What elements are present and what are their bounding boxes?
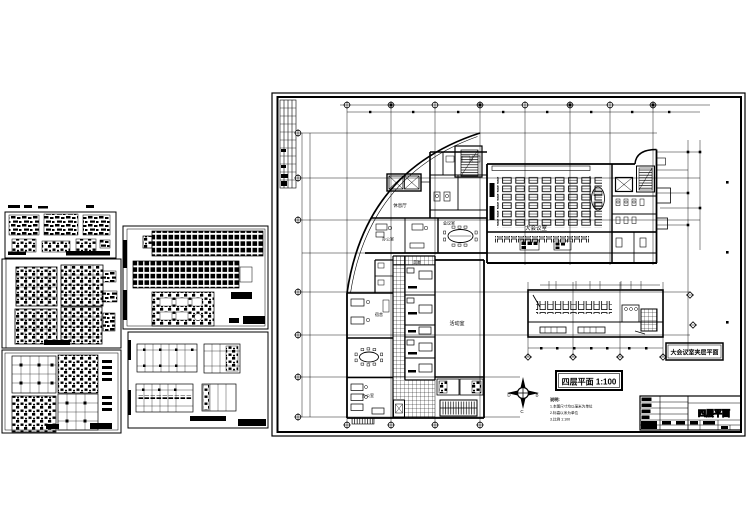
- label-office-top: 办公室: [382, 236, 394, 242]
- plan-title: 四层平面 1:100: [562, 378, 617, 387]
- notes-title: 说明:: [550, 396, 560, 403]
- label-office-bottom: 办公室: [362, 392, 374, 398]
- label-activity: 活动室: [449, 320, 464, 327]
- panel-b: [2, 259, 121, 348]
- main-sheet: 大会议室 休息厅 会议室 办公室 走廊 活动室 宿舍 办公室 大会议室夹层平面 …: [272, 93, 745, 436]
- panel-c: [2, 350, 121, 433]
- notes-line2: 2.标高以米为单位: [550, 410, 579, 415]
- titleblock-drawing-name: 四层平面: [698, 409, 730, 418]
- label-meeting: 会议室: [443, 220, 455, 226]
- panel-d: [123, 226, 268, 329]
- notes-line1: 1.本图尺寸均以毫米为单位: [550, 404, 593, 409]
- panel-e: [128, 332, 268, 428]
- sheet-outer-border: [272, 93, 745, 436]
- panel-a: [5, 205, 116, 258]
- label-dorm: 宿舍: [375, 311, 383, 317]
- cad-canvas: 大会议室 休息厅 会议室 办公室 走廊 活动室 宿舍 办公室 大会议室夹层平面 …: [0, 0, 749, 530]
- label-auditorium: 大会议室: [525, 224, 548, 232]
- label-corridor: 走廊: [413, 259, 421, 265]
- desk-row: [536, 301, 612, 314]
- compass-letter-right: B: [535, 393, 538, 398]
- plan-title-box: 四层平面 1:100: [556, 371, 622, 390]
- cad-drawing: 大会议室 休息厅 会议室 办公室 走廊 活动室 宿舍 办公室 大会议室夹层平面 …: [0, 0, 749, 530]
- mezzanine-label: 大会议室夹层平面: [670, 349, 718, 357]
- notes-line3: 3.比例 1:100: [550, 417, 570, 422]
- stair-symbol-topright: [637, 166, 655, 192]
- label-lounge: 休息厅: [393, 202, 407, 209]
- seat-rows: [497, 177, 602, 228]
